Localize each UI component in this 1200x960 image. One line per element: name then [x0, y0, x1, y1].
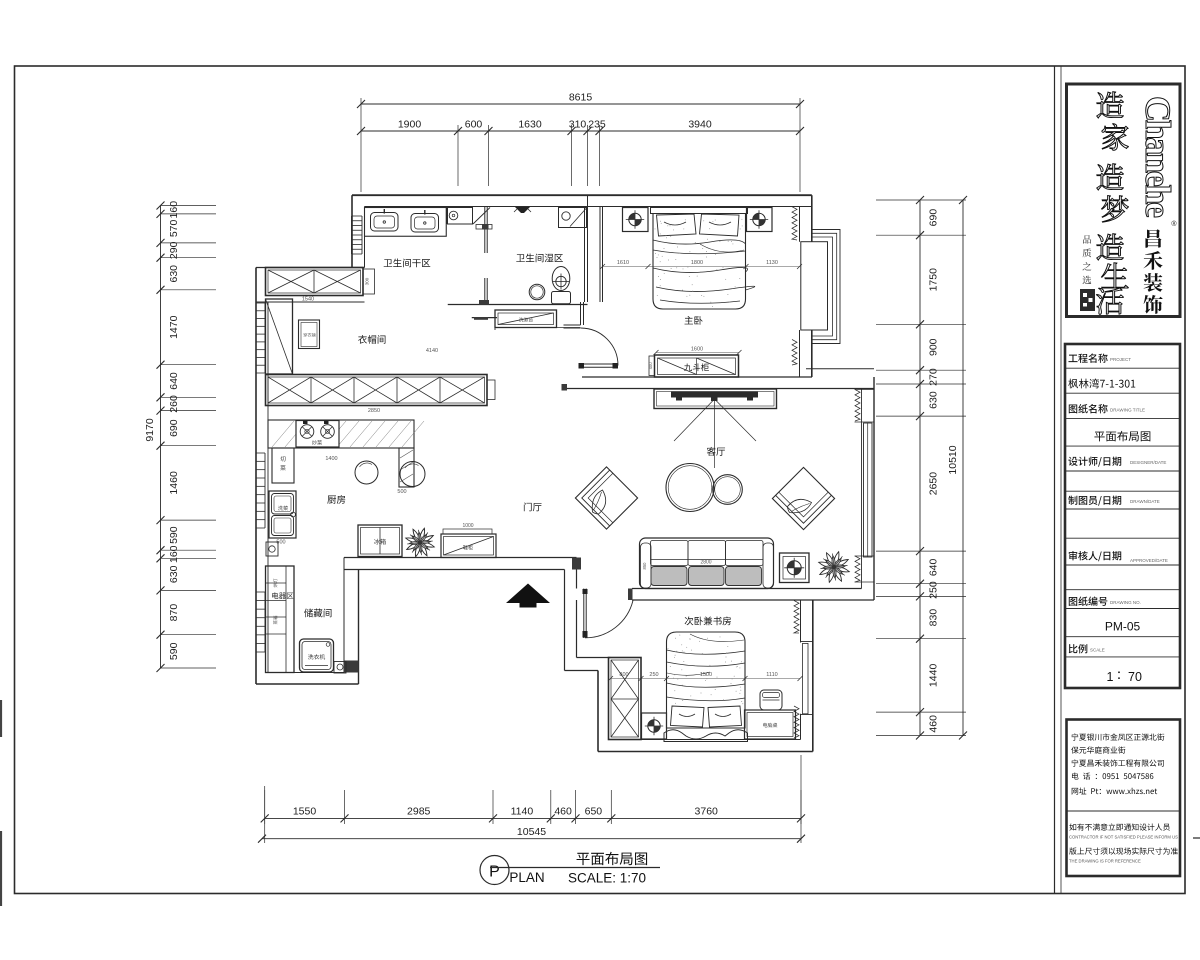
svg-text:270: 270 [928, 368, 940, 386]
svg-text:590: 590 [168, 642, 180, 660]
svg-text:260: 260 [168, 395, 180, 413]
svg-text:1470: 1470 [168, 315, 180, 339]
svg-text:1800: 1800 [691, 260, 703, 266]
svg-text:8615: 8615 [569, 92, 593, 104]
svg-text:2985: 2985 [407, 806, 431, 818]
svg-text:1460: 1460 [168, 471, 180, 495]
svg-text:1000: 1000 [462, 523, 473, 529]
svg-text:250: 250 [649, 672, 658, 678]
svg-text:2650: 2650 [928, 472, 940, 496]
svg-text:3760: 3760 [695, 806, 719, 818]
svg-text:SCALE: 1:70: SCALE: 1:70 [568, 871, 646, 886]
svg-text:3940: 3940 [688, 119, 712, 131]
svg-text:1130: 1130 [766, 260, 778, 266]
svg-text:290: 290 [168, 241, 180, 259]
svg-text:SCALE: SCALE [1090, 648, 1105, 653]
svg-text:1110: 1110 [766, 672, 777, 678]
svg-text:870: 870 [168, 604, 180, 622]
svg-text:600: 600 [465, 119, 483, 131]
svg-text:690: 690 [168, 419, 180, 437]
svg-text:640: 640 [928, 558, 940, 576]
svg-text:460: 460 [928, 715, 940, 733]
svg-text:850: 850 [642, 562, 647, 570]
svg-text:DRAWN/DATE: DRAWN/DATE [1130, 499, 1160, 504]
svg-text:9170: 9170 [144, 418, 156, 442]
svg-text:DRAWING TITLE: DRAWING TITLE [1110, 408, 1145, 413]
svg-text:570: 570 [168, 219, 180, 237]
svg-text:590: 590 [168, 526, 180, 544]
svg-text:235: 235 [588, 119, 606, 131]
svg-text:400: 400 [648, 362, 653, 370]
svg-text:830: 830 [928, 609, 940, 627]
svg-text:DESIGNER/DATE: DESIGNER/DATE [1130, 460, 1166, 465]
svg-text:2800: 2800 [700, 560, 711, 566]
svg-text:APPROVED/DATE: APPROVED/DATE [1130, 558, 1168, 563]
svg-text:310: 310 [569, 119, 587, 131]
svg-text:250: 250 [928, 581, 940, 599]
svg-text:10510: 10510 [947, 445, 959, 474]
svg-text:1: 1 [1107, 670, 1114, 684]
svg-text:PM-05: PM-05 [1105, 620, 1141, 634]
svg-text:460: 460 [554, 806, 572, 818]
svg-text:1400: 1400 [325, 456, 337, 462]
svg-text:630: 630 [168, 565, 180, 583]
svg-text:1140: 1140 [511, 806, 534, 818]
svg-text:10545: 10545 [517, 826, 546, 838]
svg-text:1610: 1610 [617, 260, 629, 266]
svg-text:Chanehe: Chanehe [1138, 96, 1178, 218]
svg-text:®: ® [1171, 220, 1177, 228]
svg-text:70: 70 [1128, 670, 1142, 684]
svg-text:300: 300 [365, 277, 370, 285]
svg-text:690: 690 [928, 209, 940, 227]
svg-text:CONTRACTOR IF NOT SATISFIED PL: CONTRACTOR IF NOT SATISFIED PLEASE INFOR… [1069, 835, 1178, 840]
svg-text:P: P [489, 864, 500, 881]
svg-text:900: 900 [928, 338, 940, 356]
svg-text:1900: 1900 [398, 119, 422, 131]
svg-text:500: 500 [397, 489, 406, 495]
svg-text:1750: 1750 [928, 268, 940, 292]
svg-text:160: 160 [168, 201, 180, 219]
svg-text:630: 630 [928, 391, 940, 409]
svg-text:800: 800 [619, 672, 628, 678]
svg-text:160: 160 [168, 545, 180, 563]
svg-text:1540: 1540 [302, 297, 314, 303]
svg-text:4140: 4140 [426, 348, 438, 354]
svg-text:PROJECT: PROJECT [1110, 357, 1131, 362]
svg-text:PLAN: PLAN [509, 870, 544, 885]
svg-text:1550: 1550 [293, 806, 317, 818]
svg-text:1440: 1440 [928, 664, 940, 688]
svg-text:650: 650 [585, 806, 603, 818]
svg-text:630: 630 [168, 265, 180, 283]
svg-text:DRAWING NO.: DRAWING NO. [1110, 600, 1141, 605]
svg-text:2850: 2850 [368, 408, 380, 414]
svg-text:640: 640 [168, 372, 180, 390]
svg-text:1630: 1630 [518, 119, 542, 131]
svg-text:THE DRAWING IS FOR REFERENCE: THE DRAWING IS FOR REFERENCE [1069, 859, 1141, 864]
svg-text:1600: 1600 [691, 347, 703, 353]
